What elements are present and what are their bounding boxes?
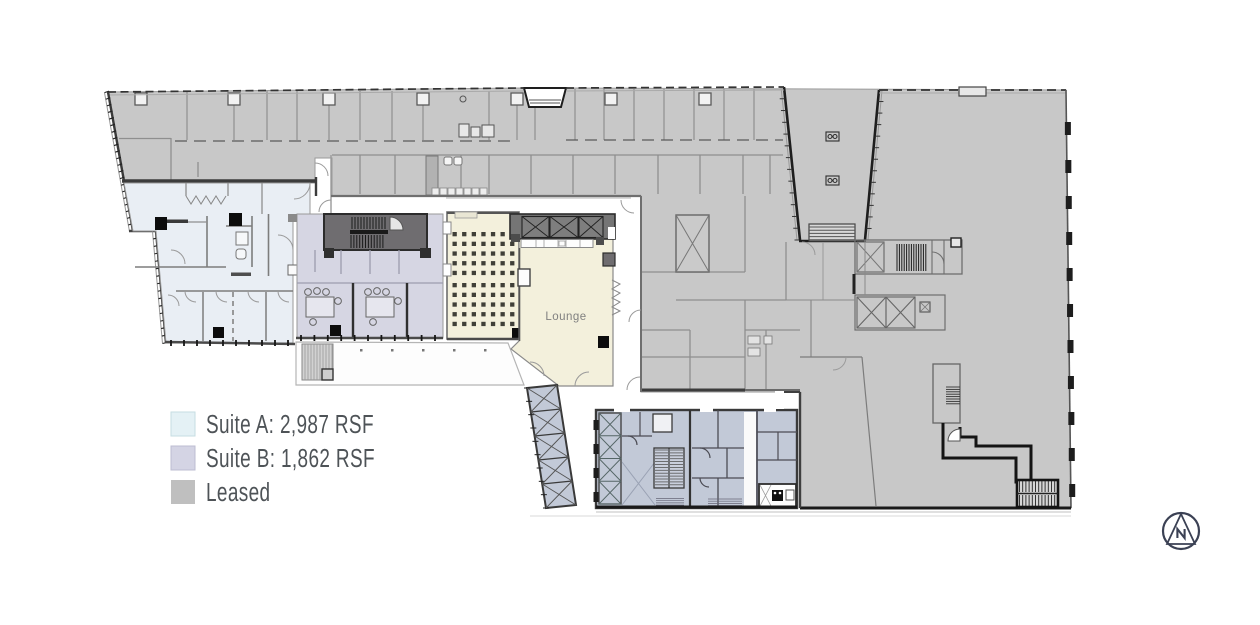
svg-text:Lounge: Lounge bbox=[545, 311, 586, 323]
svg-text:Suite B: 1,862 RSF: Suite B: 1,862 RSF bbox=[206, 443, 375, 473]
svg-text:Suite A: 2,987 RSF: Suite A: 2,987 RSF bbox=[206, 409, 374, 439]
svg-text:Leased: Leased bbox=[206, 477, 270, 507]
